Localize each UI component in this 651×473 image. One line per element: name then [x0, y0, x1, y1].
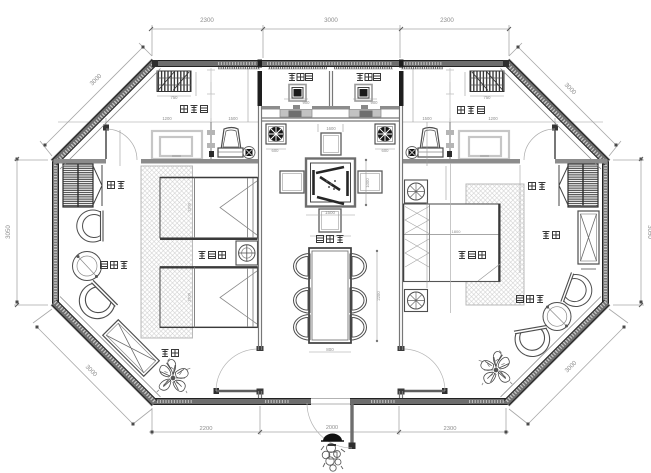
svg-text:3000: 3000 — [324, 17, 338, 24]
svg-text:900: 900 — [371, 100, 379, 105]
svg-text:750: 750 — [484, 95, 492, 100]
svg-text:3050: 3050 — [646, 225, 651, 239]
svg-text:1500: 1500 — [325, 210, 336, 215]
svg-text:2300: 2300 — [444, 426, 457, 432]
svg-text:600: 600 — [272, 148, 280, 153]
svg-text:2200: 2200 — [200, 426, 213, 432]
svg-text:2000: 2000 — [326, 425, 338, 431]
svg-text:3050: 3050 — [5, 225, 12, 239]
svg-text:800: 800 — [326, 347, 334, 352]
svg-text:2300: 2300 — [440, 17, 454, 24]
svg-text:2300: 2300 — [200, 17, 214, 24]
svg-text:1200: 1200 — [488, 116, 498, 121]
svg-text:3000: 3000 — [564, 359, 579, 374]
svg-text:1500: 1500 — [422, 116, 432, 121]
svg-text:900: 900 — [303, 100, 311, 105]
svg-text:600: 600 — [382, 148, 390, 153]
svg-text:1200: 1200 — [162, 116, 172, 121]
svg-text:1200: 1200 — [187, 202, 192, 212]
svg-text:1800: 1800 — [452, 229, 462, 234]
svg-text:2200: 2200 — [376, 291, 381, 301]
svg-text:1500: 1500 — [228, 116, 238, 121]
svg-text:750: 750 — [171, 95, 179, 100]
svg-text:1200: 1200 — [187, 292, 192, 302]
svg-text:1600: 1600 — [326, 126, 336, 131]
svg-text:1000: 1000 — [365, 178, 370, 188]
svg-text:3000: 3000 — [89, 72, 104, 87]
